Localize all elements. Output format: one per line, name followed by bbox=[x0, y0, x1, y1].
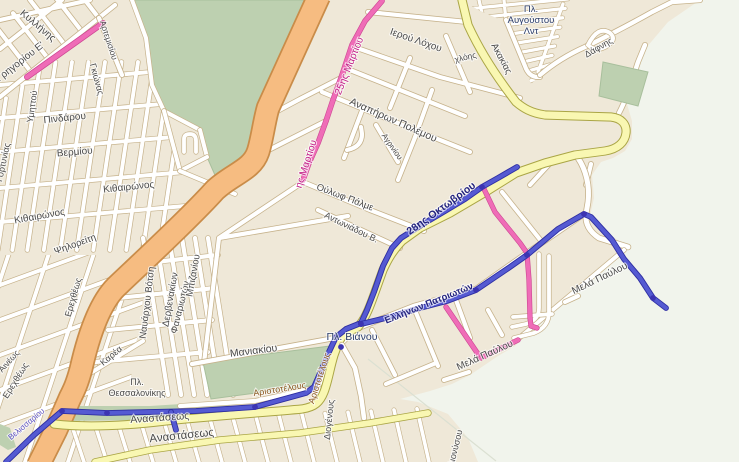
svg-text:Αυγούστου: Αυγούστου bbox=[508, 15, 555, 26]
svg-text:Πλ.: Πλ. bbox=[130, 377, 144, 387]
svg-text:Πλ. Βιάνου: Πλ. Βιάνου bbox=[327, 331, 378, 343]
svg-text:Λντ: Λντ bbox=[524, 26, 539, 37]
svg-text:Πλ.: Πλ. bbox=[524, 4, 538, 15]
svg-text:Θεσσαλονίκης: Θεσσαλονίκης bbox=[108, 388, 166, 398]
